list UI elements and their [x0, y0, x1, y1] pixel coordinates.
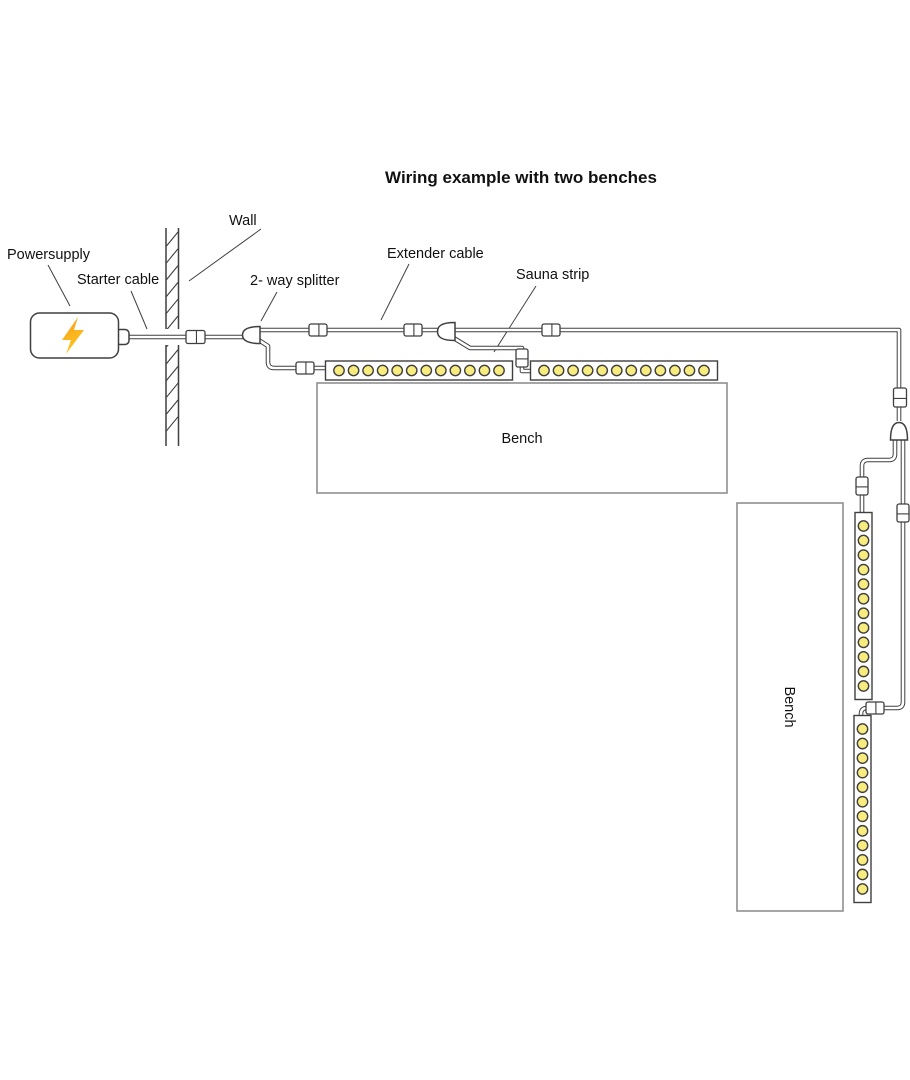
led-dot [684, 365, 694, 375]
led-dot [857, 724, 867, 734]
cable-connector [186, 331, 205, 344]
wall-hatch-line [167, 417, 179, 431]
bench-right: Bench [737, 503, 843, 911]
led-dot [465, 365, 475, 375]
led-dot [553, 365, 563, 375]
led-dot [858, 637, 868, 647]
cable-connector [894, 388, 907, 407]
led-dot [450, 365, 460, 375]
led-dot [858, 594, 868, 604]
sauna-strip-leader-line [494, 286, 536, 352]
two-way-splitter-3 [891, 423, 908, 441]
led-dot [858, 652, 868, 662]
led-dot [857, 840, 867, 850]
led-dot [655, 365, 665, 375]
led-dot [612, 365, 622, 375]
led-dot [641, 365, 651, 375]
powersupply-label: Powersupply [7, 247, 91, 263]
led-dot [334, 365, 344, 375]
diagram-title: Wiring example with two benches [385, 168, 657, 187]
wall-hatch-line [167, 232, 179, 246]
wall-hatch-line [167, 249, 179, 263]
led-dot [436, 365, 446, 375]
cable-connector [296, 362, 314, 374]
cable-connector [309, 324, 327, 336]
cable-connector [404, 324, 422, 336]
led-dot [539, 365, 549, 375]
cable-connector [897, 504, 909, 522]
led-dot [858, 681, 868, 691]
led-dot [858, 579, 868, 589]
powersupply-leader-line [48, 265, 70, 306]
wall-label: Wall [229, 213, 257, 229]
led-dot [377, 365, 387, 375]
led-dot [857, 797, 867, 807]
led-dot [858, 564, 868, 574]
led-dot [582, 365, 592, 375]
cable-connector [542, 324, 560, 336]
extender-cable-leader-line [381, 264, 409, 320]
wiring-diagram-svg: Wiring example with two benches [0, 0, 910, 1080]
led-dot [858, 535, 868, 545]
led-dot [670, 365, 680, 375]
wall-hatch-line [167, 282, 179, 296]
sauna-strip-label: Sauna strip [516, 267, 589, 283]
wall-hatch-line [167, 266, 179, 280]
annotation-labels: Powersupply Starter cable Wall 2- way sp… [7, 213, 589, 289]
bench-top: Bench [317, 383, 727, 493]
led-dot [407, 365, 417, 375]
wall-hatch-line [167, 316, 179, 330]
wall-hatch-line [167, 299, 179, 313]
led-dot [858, 623, 868, 633]
power-supply [31, 313, 130, 358]
led-dot [858, 666, 868, 676]
wall-hatch-line [167, 400, 179, 414]
two-way-splitter-1 [243, 327, 261, 344]
led-dot [858, 550, 868, 560]
led-dot [479, 365, 489, 375]
led-dot [568, 365, 578, 375]
led-dot [857, 855, 867, 865]
cable-connector [866, 702, 884, 714]
led-dot [626, 365, 636, 375]
led-dot [857, 767, 867, 777]
wall-hatch-line [167, 350, 179, 364]
strip-v1-feed-cable [862, 438, 895, 513]
led-dot [494, 365, 504, 375]
starter-cable-leader-line [131, 291, 147, 329]
led-dot [858, 521, 868, 531]
led-dot [857, 811, 867, 821]
starter-cable-label: Starter cable [77, 272, 159, 288]
bench-top-label: Bench [501, 431, 542, 447]
sauna-strip-h2 [531, 361, 718, 380]
led-dot [857, 869, 867, 879]
led-dot [857, 738, 867, 748]
led-dot [348, 365, 358, 375]
sauna-strip-h1 [326, 361, 513, 380]
cable-connector [856, 477, 868, 495]
two-way-splitter-2 [438, 323, 456, 341]
led-dot [858, 608, 868, 618]
led-dot [699, 365, 709, 375]
extender-cable-label: Extender cable [387, 246, 484, 262]
led-dot [857, 782, 867, 792]
led-dot [857, 826, 867, 836]
strip-h1-feed-cable [254, 337, 326, 368]
splitter-label: 2- way splitter [250, 273, 340, 289]
led-dot [597, 365, 607, 375]
led-dot [363, 365, 373, 375]
wall-hatch-line [167, 366, 179, 380]
led-dot [421, 365, 431, 375]
led-dot [857, 884, 867, 894]
led-dot [392, 365, 402, 375]
bench-right-label: Bench [781, 686, 797, 727]
cable-connector [516, 349, 528, 367]
sauna-strip-v2 [854, 716, 871, 903]
splitter-leader-line [261, 292, 277, 321]
wiring-diagram-page: Wiring example with two benches [0, 0, 910, 1080]
wall-hatch-line [167, 383, 179, 397]
led-dot [857, 753, 867, 763]
sauna-strip-v1 [855, 513, 872, 700]
